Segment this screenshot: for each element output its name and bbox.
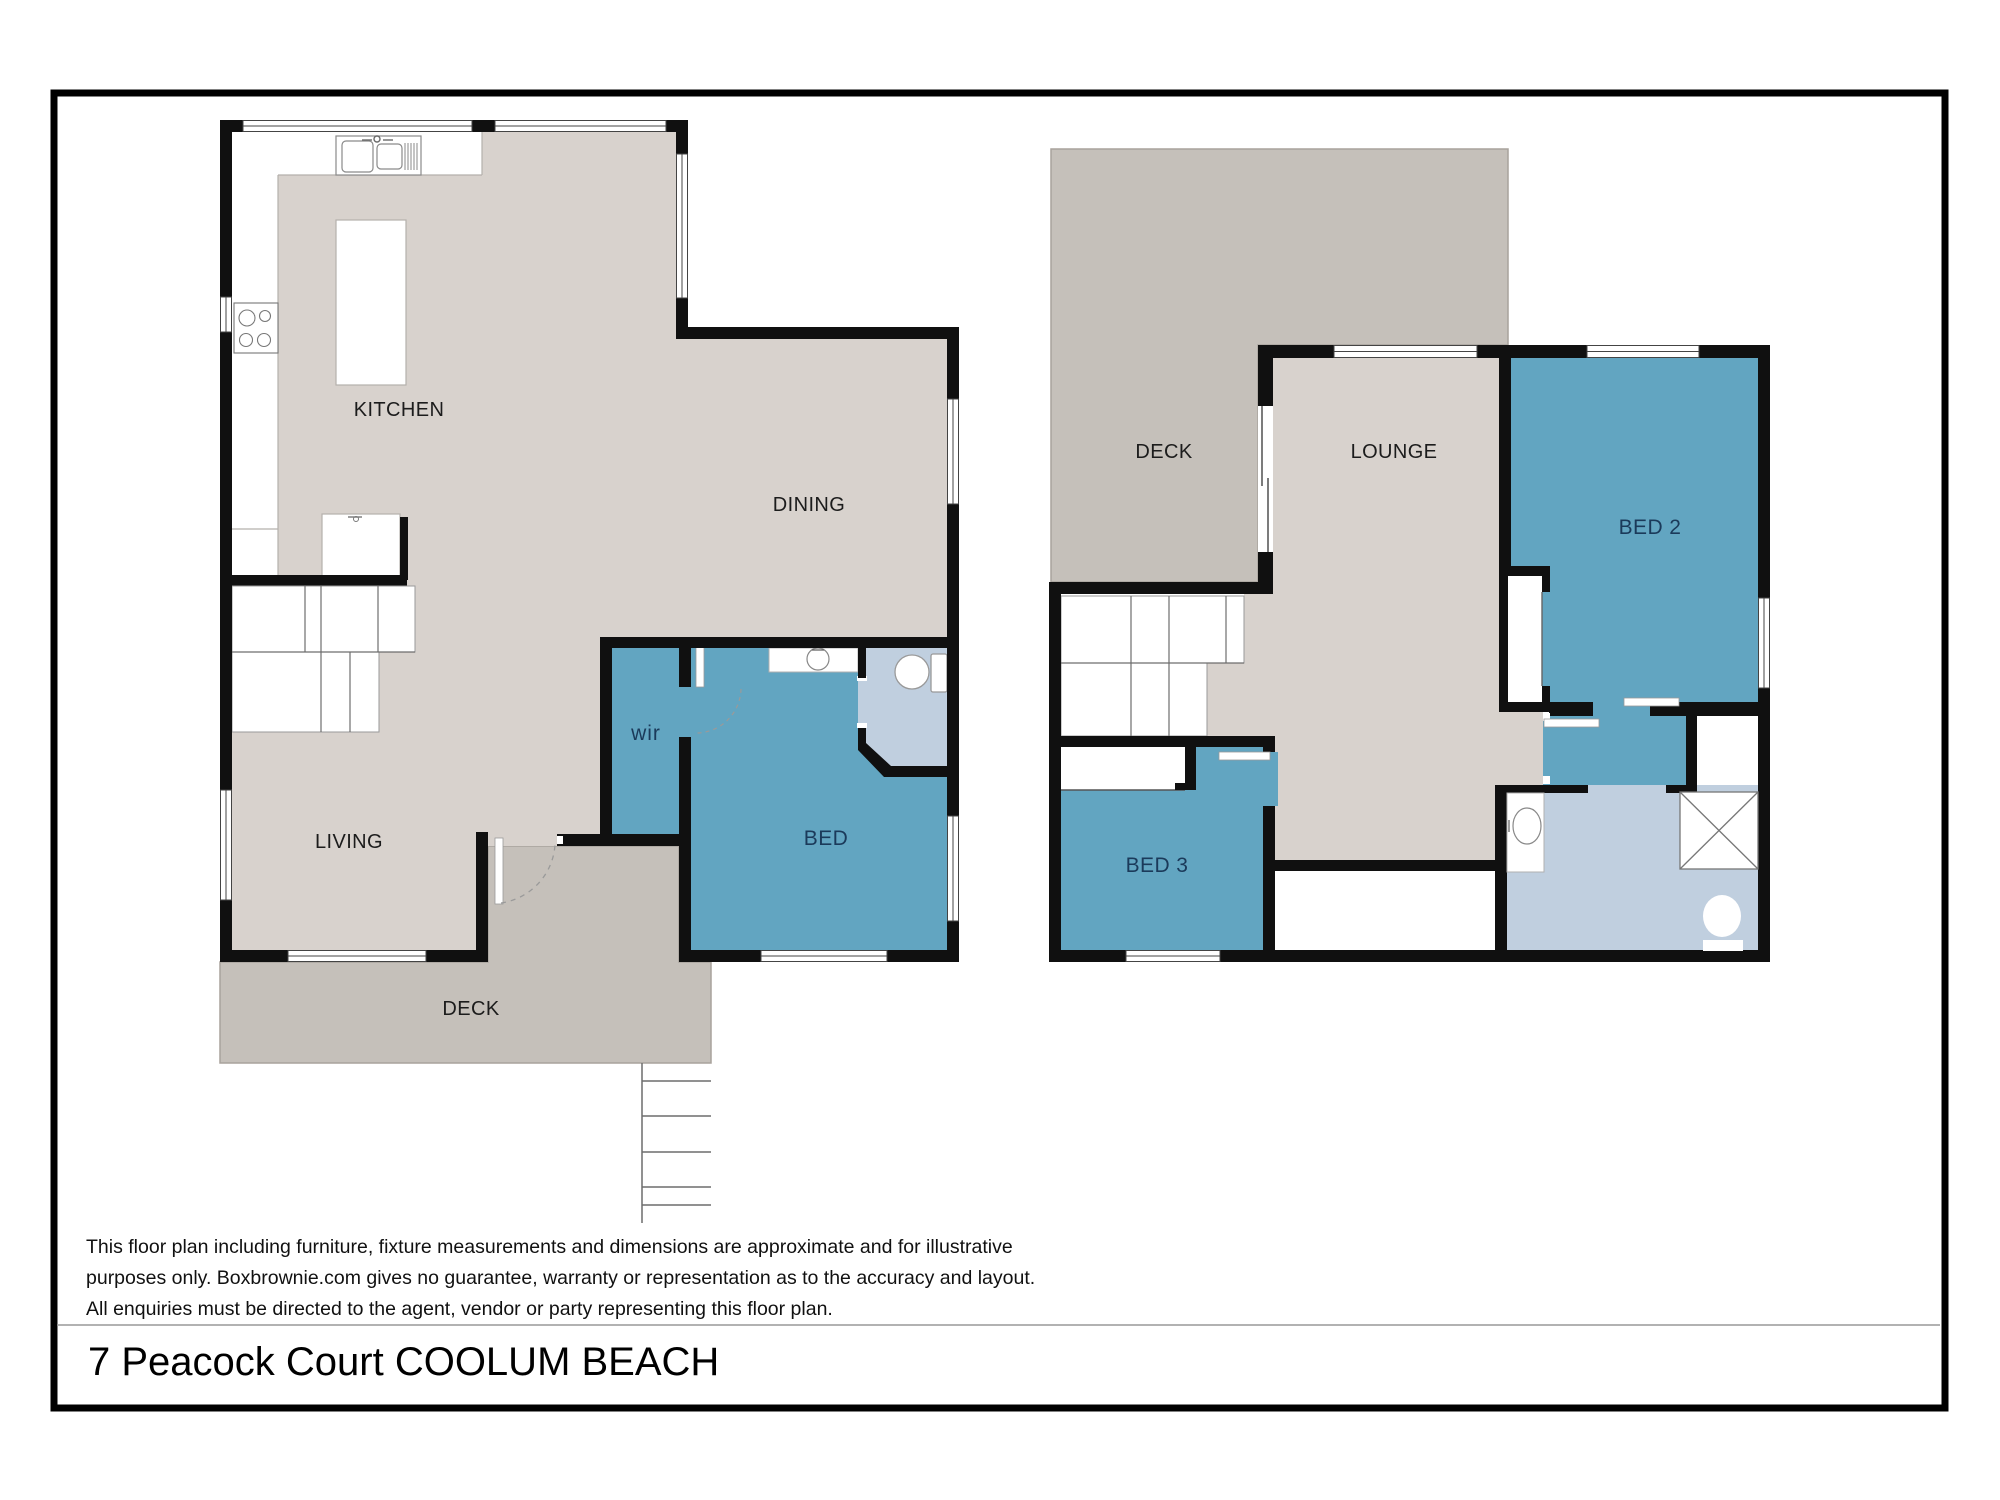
- svg-text:wir: wir: [630, 722, 661, 745]
- svg-text:DINING: DINING: [773, 494, 845, 516]
- svg-text:7 Peacock Court COOLUM BEACH: 7 Peacock Court COOLUM BEACH: [88, 1340, 719, 1384]
- svg-text:All enquiries must be directed: All enquiries must be directed to the ag…: [86, 1298, 833, 1320]
- svg-text:purposes only. Boxbrownie.com: purposes only. Boxbrownie.com gives no g…: [86, 1267, 1035, 1289]
- svg-text:DECK: DECK: [442, 998, 499, 1020]
- svg-text:DECK: DECK: [1135, 441, 1192, 463]
- svg-text:LIVING: LIVING: [315, 831, 383, 853]
- svg-text:BED 3: BED 3: [1126, 854, 1189, 877]
- svg-text:This floor plan including furn: This floor plan including furniture, fix…: [86, 1236, 1013, 1258]
- svg-text:LOUNGE: LOUNGE: [1351, 441, 1438, 463]
- svg-text:BED: BED: [804, 827, 848, 850]
- svg-text:KITCHEN: KITCHEN: [354, 399, 445, 421]
- svg-text:BED 2: BED 2: [1619, 516, 1682, 539]
